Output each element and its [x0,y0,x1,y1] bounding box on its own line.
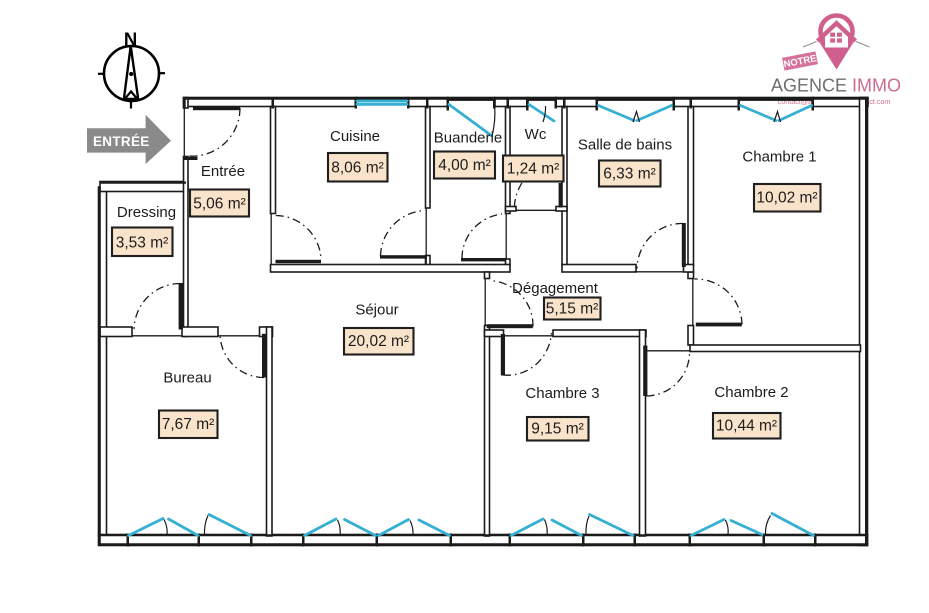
svg-text:Dressing: Dressing [117,204,176,221]
svg-text:Chambre 3: Chambre 3 [525,385,599,402]
svg-text:Buanderie: Buanderie [434,130,502,147]
svg-text:5,06 m²: 5,06 m² [193,196,246,213]
svg-text:5,15 m²: 5,15 m² [546,301,599,318]
svg-text:7,67 m²: 7,67 m² [162,416,215,433]
svg-text:1,24 m²: 1,24 m² [507,161,560,178]
svg-text:Chambre 1: Chambre 1 [742,149,816,166]
svg-text:4,00 m²: 4,00 m² [438,157,491,174]
svg-text:6,33 m²: 6,33 m² [603,166,656,183]
svg-text:Chambre 2: Chambre 2 [714,384,788,401]
svg-text:Séjour: Séjour [355,302,398,319]
svg-text:Entrée: Entrée [201,163,245,180]
svg-text:Cuisine: Cuisine [330,128,380,145]
svg-text:10,02 m²: 10,02 m² [756,190,817,207]
svg-text:ENTRÉE: ENTRÉE [93,134,150,149]
svg-text:Salle de bains: Salle de bains [578,137,672,154]
svg-text:Dégagement: Dégagement [512,280,599,297]
svg-text:10,44 m²: 10,44 m² [716,418,777,435]
svg-text:3,53 m²: 3,53 m² [116,235,169,252]
svg-text:9,15 m²: 9,15 m² [531,421,584,438]
svg-text:AGENCE IMMO: AGENCE IMMO [771,76,901,96]
svg-text:8,06 m²: 8,06 m² [331,160,384,177]
svg-text:Bureau: Bureau [163,370,211,387]
svg-text:Wc: Wc [525,126,547,143]
svg-text:20,02 m²: 20,02 m² [348,333,409,350]
